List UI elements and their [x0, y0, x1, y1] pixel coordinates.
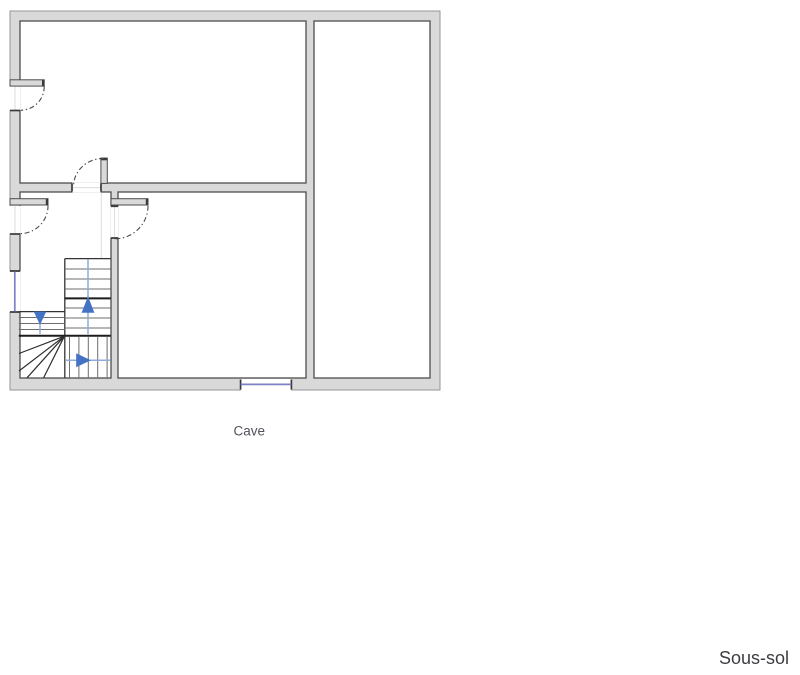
door-leaf[interactable] — [111, 199, 148, 205]
door-leaf[interactable] — [10, 199, 48, 205]
plan-canvas[interactable]: Cave Sous-sol — [0, 0, 800, 675]
room-top[interactable] — [20, 21, 306, 183]
door-leaf-cap — [42, 80, 44, 87]
room-label-cave[interactable]: Cave — [234, 424, 266, 439]
door-leaf-cap — [146, 199, 148, 206]
door-leaf[interactable] — [101, 158, 107, 183]
floor-level-label: Sous-sol — [719, 648, 789, 668]
door-leaf-cap — [46, 199, 48, 206]
room-right[interactable] — [314, 21, 430, 378]
door-leaf[interactable] — [10, 80, 44, 86]
room-cave[interactable] — [118, 192, 306, 378]
rooms[interactable] — [20, 21, 430, 378]
